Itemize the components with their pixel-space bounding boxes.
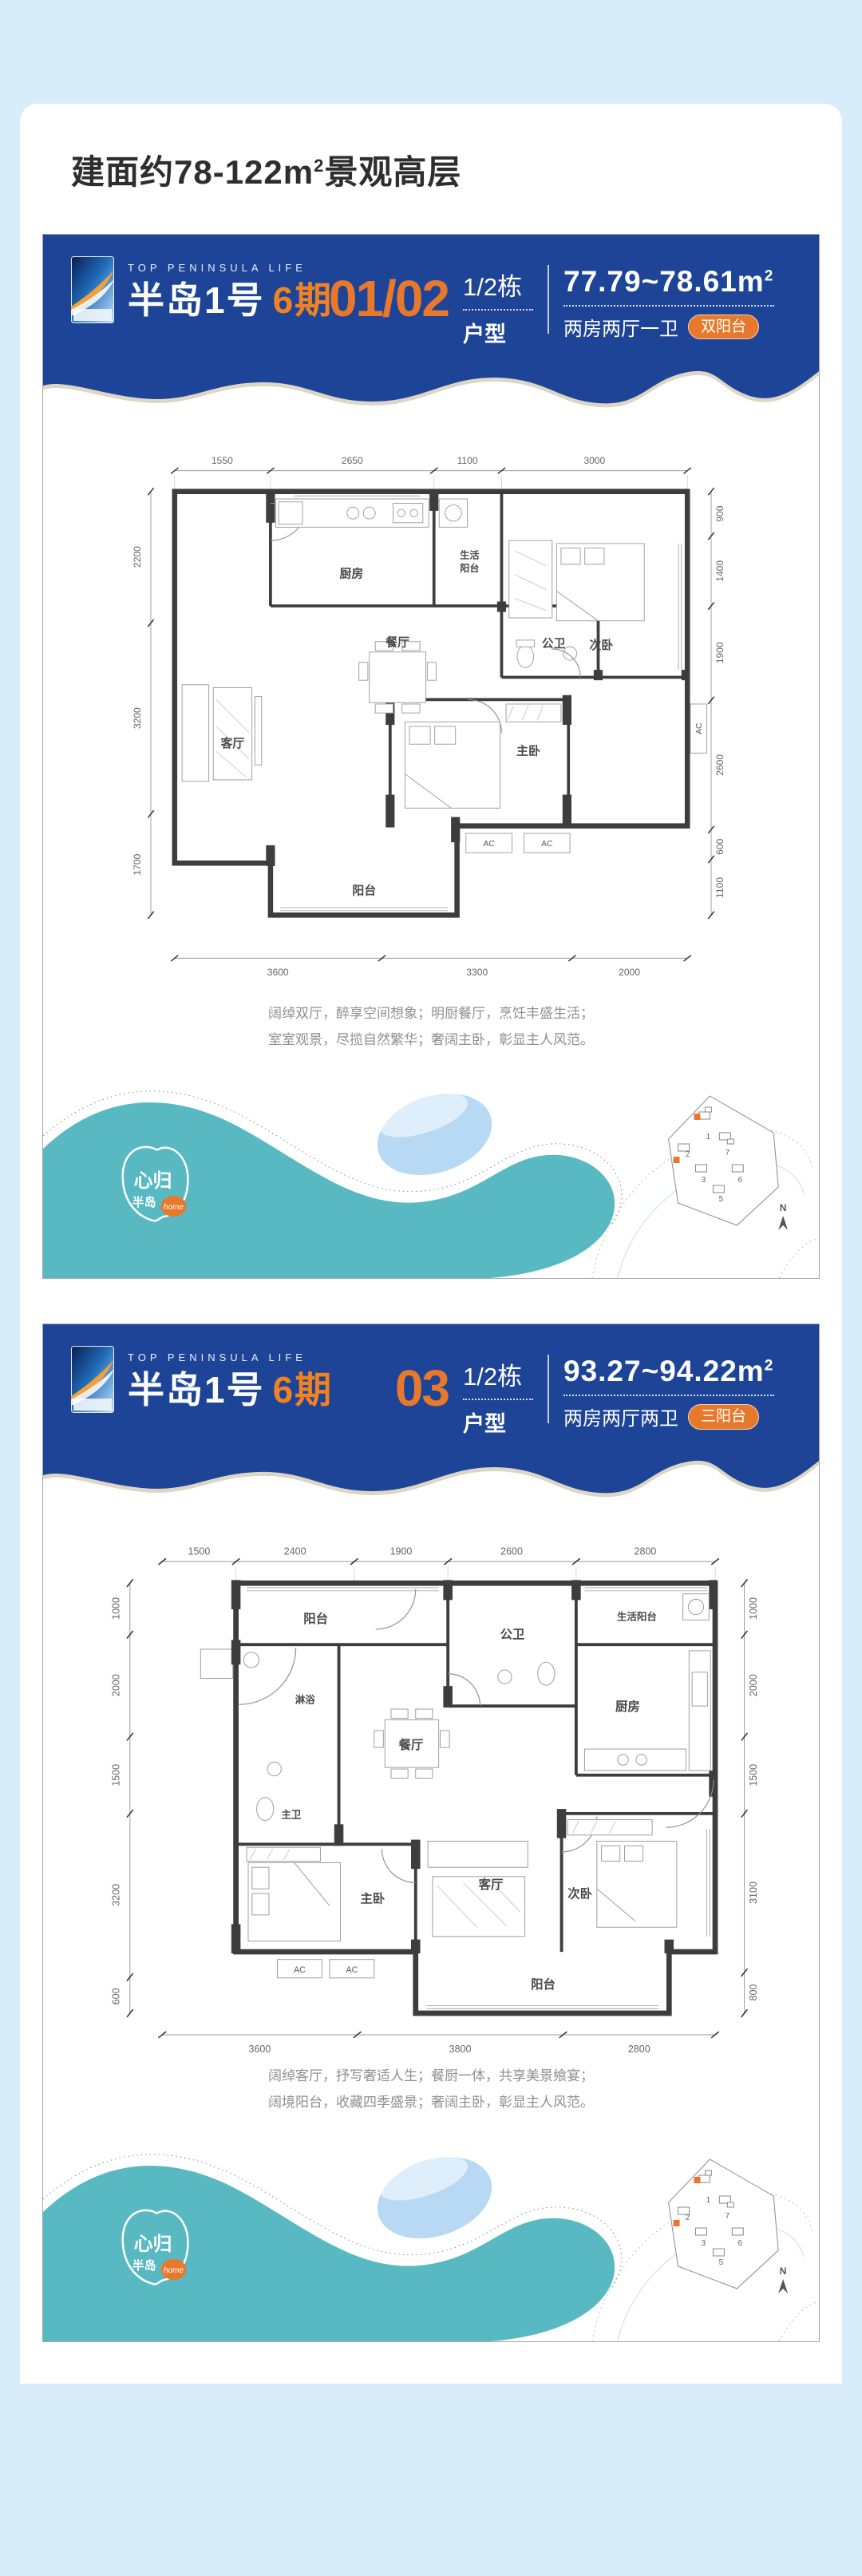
brand-name: 半岛1号6期 — [128, 1371, 333, 1408]
svg-text:2: 2 — [686, 1150, 690, 1159]
unit-card-03: TOP PENINSULA LIFE 半岛1号6期 03 1/2栋 户型 93.… — [42, 1324, 820, 2341]
brand-tagline: TOP PENINSULA LIFE — [128, 1351, 333, 1363]
footer-art: 心归 半岛 home 1 2 7 3 6 5 — [43, 2129, 819, 2341]
unit-building: 1/2栋 — [463, 1356, 533, 1392]
svg-text:阳台: 阳台 — [303, 1612, 328, 1627]
compass-icon: N — [778, 2265, 788, 2293]
svg-text:1100: 1100 — [457, 455, 478, 466]
brand-name-cn: 半岛1号 — [128, 1369, 265, 1411]
unit-layout: 两房两厅两卫 — [563, 1403, 678, 1430]
brand-block: TOP PENINSULA LIFE 半岛1号6期 — [70, 255, 333, 324]
svg-text:6: 6 — [738, 2239, 743, 2248]
svg-text:1000: 1000 — [748, 1597, 759, 1620]
svg-text:AC: AC — [695, 723, 704, 734]
svg-text:阳台: 阳台 — [460, 562, 479, 574]
svg-text:餐厅: 餐厅 — [399, 1737, 424, 1752]
dim-right: 900 1400 1900 2600 600 1100 — [708, 488, 726, 919]
dim-top: 1500 2400 1900 2600 2800 — [158, 1546, 718, 1582]
unit-area-block: 77.79~78.61m2 两房两厅一卫 双阳台 — [563, 257, 774, 341]
header-wave — [43, 1456, 819, 1507]
unit-area-value: 93.27~94.22m — [563, 1355, 765, 1387]
svg-text:1000: 1000 — [110, 1597, 121, 1620]
dim-left: 1000 2000 1500 3200 600 — [110, 1580, 132, 2017]
svg-text:心归: 心归 — [134, 2234, 172, 2255]
svg-text:主卧: 主卧 — [516, 743, 540, 758]
svg-text:生活阳台: 生活阳台 — [617, 1611, 657, 1623]
svg-text:3000: 3000 — [583, 455, 605, 466]
svg-text:home: home — [164, 1203, 184, 1212]
dim-bottom: 3600 3300 2000 — [171, 956, 691, 978]
unit-layout: 两房两厅一卫 — [563, 313, 678, 341]
dotted-divider — [463, 309, 533, 311]
svg-text:600: 600 — [714, 838, 726, 854]
svg-text:2400: 2400 — [284, 1546, 306, 1557]
unit-area: 93.27~94.22m2 — [563, 1355, 774, 1388]
unit-info: 03 1/2栋 户型 93.27~94.22m2 两房两厅两卫 三阳台 — [311, 1347, 774, 1438]
svg-text:1500: 1500 — [748, 1764, 759, 1787]
desc-line-2: 室室观景，尽揽自然繁华；奢阔主卧，彰显主人风范。 — [268, 1032, 594, 1047]
svg-text:5: 5 — [719, 2258, 724, 2267]
brand-name: 半岛1号6期 — [128, 282, 333, 319]
unit-area-sup: 2 — [765, 268, 774, 285]
teal-wave — [43, 2154, 622, 2341]
svg-text:N: N — [780, 1202, 787, 1213]
unit-area-block: 93.27~94.22m2 两房两厅两卫 三阳台 — [563, 1347, 774, 1430]
svg-text:客厅: 客厅 — [479, 1877, 504, 1892]
svg-text:AC: AC — [294, 1965, 306, 1975]
title-sup: 2 — [314, 156, 324, 176]
compass-icon: N — [778, 1202, 788, 1230]
brand-logo-icon — [70, 255, 115, 324]
svg-text:6: 6 — [738, 1176, 743, 1185]
svg-text:1500: 1500 — [110, 1764, 121, 1787]
unit-card-01-02: TOP PENINSULA LIFE 半岛1号6期 01/02 1/2栋 户型 … — [42, 234, 820, 1279]
unit-type-label: 户型 — [463, 317, 533, 348]
svg-text:1900: 1900 — [390, 1546, 413, 1557]
balcony-tag: 双阳台 — [688, 315, 759, 340]
svg-text:3200: 3200 — [110, 1884, 121, 1906]
svg-text:心归: 心归 — [134, 1170, 172, 1192]
title-prefix: 建面约78-122m — [71, 153, 314, 191]
svg-text:2650: 2650 — [342, 455, 363, 466]
brand-name-cn: 半岛1号 — [128, 279, 265, 321]
unit-area: 77.79~78.61m2 — [563, 265, 774, 299]
svg-text:800: 800 — [748, 1984, 759, 2001]
svg-text:3800: 3800 — [449, 2044, 472, 2055]
floorplan-2: 1500 2400 1900 2600 2800 1000 2000 1500 … — [85, 1521, 777, 2060]
brand-text: TOP PENINSULA LIFE 半岛1号6期 — [128, 1345, 333, 1408]
dim-top: 1550 2650 1100 3000 — [171, 455, 691, 490]
svg-text:2600: 2600 — [500, 1546, 523, 1557]
svg-text:淋浴: 淋浴 — [295, 1694, 316, 1706]
svg-text:生活: 生活 — [460, 548, 479, 560]
brand-text: TOP PENINSULA LIFE 半岛1号6期 — [128, 255, 333, 319]
svg-text:AC: AC — [484, 840, 495, 849]
windows — [247, 1588, 710, 2008]
site-map: 1 2 7 3 6 5 N — [669, 1096, 789, 1230]
svg-text:N: N — [780, 2265, 787, 2277]
balcony-tag: 三阳台 — [688, 1404, 759, 1430]
svg-text:2000: 2000 — [748, 1675, 759, 1697]
dotted-divider — [463, 1399, 533, 1400]
unit-building-block: 1/2栋 户型 — [463, 257, 533, 348]
title-suffix: 景观高层 — [324, 153, 461, 191]
unit-number: 03 — [311, 1347, 449, 1430]
unit-type-label: 户型 — [463, 1407, 533, 1438]
svg-text:1900: 1900 — [714, 642, 726, 663]
unit-info: 01/02 1/2栋 户型 77.79~78.61m2 两房两厅一卫 双阳台 — [311, 257, 774, 348]
water-blob — [367, 1080, 503, 1189]
svg-text:半岛: 半岛 — [132, 2258, 156, 2273]
svg-text:1550: 1550 — [212, 455, 233, 466]
dim-left: 2200 3200 1700 — [132, 488, 154, 919]
svg-text:900: 900 — [714, 505, 726, 521]
svg-text:客厅: 客厅 — [220, 736, 245, 750]
svg-text:3: 3 — [702, 2239, 706, 2248]
unit-building: 1/2栋 — [463, 267, 533, 303]
unit-building-block: 1/2栋 户型 — [463, 1347, 533, 1438]
svg-text:公卫: 公卫 — [542, 637, 566, 651]
walls — [200, 1581, 717, 2014]
svg-text:2000: 2000 — [619, 967, 640, 978]
unit-area-sup: 2 — [765, 1358, 774, 1375]
svg-text:2800: 2800 — [628, 2044, 650, 2055]
svg-text:AC: AC — [346, 1965, 358, 1975]
card-header: TOP PENINSULA LIFE 半岛1号6期 01/02 1/2栋 户型 … — [43, 235, 819, 367]
svg-text:1: 1 — [706, 2196, 711, 2205]
unit-area-value: 77.79~78.61m — [563, 265, 765, 298]
floorplan-1: 1550 2650 1100 3000 2200 3200 1700 900 1 — [108, 432, 754, 997]
svg-text:主卫: 主卫 — [281, 1809, 302, 1821]
brand-tagline: TOP PENINSULA LIFE — [128, 262, 333, 274]
content-container: 建面约78-122m2景观高层 TOP PENINSULA LIFE — [20, 104, 842, 2384]
vertical-divider — [548, 265, 549, 334]
dotted-divider — [563, 1395, 774, 1396]
svg-text:厨房: 厨房 — [615, 1699, 640, 1714]
svg-text:7: 7 — [726, 1149, 730, 1157]
svg-text:阳台: 阳台 — [531, 1977, 556, 1992]
svg-text:半岛: 半岛 — [132, 1195, 156, 1209]
brand-block: TOP PENINSULA LIFE 半岛1号6期 — [70, 1345, 333, 1414]
svg-text:3: 3 — [702, 1176, 706, 1185]
svg-text:次卧: 次卧 — [589, 638, 613, 652]
svg-text:7: 7 — [726, 2212, 730, 2221]
brand-logo-icon — [70, 1345, 115, 1414]
page-title: 建面约78-122m2景观高层 — [71, 145, 820, 194]
svg-text:1: 1 — [706, 1133, 711, 1142]
svg-text:3200: 3200 — [132, 707, 143, 729]
svg-text:1700: 1700 — [132, 853, 143, 875]
svg-text:厨房: 厨房 — [340, 567, 364, 581]
unit-description: 阔绰客厅，抒写奢适人生；餐厨一体，共享美景飨宴；阔境阳台，收藏四季盛景；奢阔主卧… — [43, 2063, 819, 2115]
svg-text:2000: 2000 — [110, 1675, 121, 1697]
svg-text:公卫: 公卫 — [500, 1628, 525, 1642]
unit-number: 01/02 — [311, 257, 449, 340]
dotted-divider — [563, 305, 774, 307]
svg-text:1400: 1400 — [714, 560, 726, 582]
svg-text:餐厅: 餐厅 — [386, 635, 409, 649]
dim-bottom: 3600 3800 2800 — [158, 2032, 718, 2055]
dim-right: 1000 2000 1500 3100 800 — [741, 1580, 759, 2017]
svg-text:3600: 3600 — [267, 967, 289, 978]
unit-description: 阔绰双厅，醉享空间想象；明厨餐厅，烹饪丰盛生活；室室观景，尽揽自然繁华；奢阔主卧… — [43, 1000, 819, 1053]
svg-text:3300: 3300 — [466, 967, 488, 978]
svg-text:5: 5 — [719, 1195, 724, 1204]
svg-text:阳台: 阳台 — [352, 883, 376, 897]
vertical-divider — [548, 1355, 549, 1423]
svg-text:home: home — [164, 2266, 184, 2275]
unit-layout-row: 两房两厅两卫 三阳台 — [563, 1403, 774, 1430]
svg-text:3100: 3100 — [748, 1882, 759, 1904]
svg-text:3600: 3600 — [249, 2044, 271, 2055]
teal-wave — [43, 1091, 622, 1278]
svg-text:主卧: 主卧 — [360, 1891, 385, 1906]
water-blob — [367, 2143, 503, 2252]
svg-text:2200: 2200 — [132, 546, 143, 568]
svg-text:2600: 2600 — [714, 754, 726, 776]
svg-text:次卧: 次卧 — [567, 1886, 592, 1901]
svg-text:1500: 1500 — [188, 1546, 211, 1557]
floorplan-1-wrap: 1550 2650 1100 3000 2200 3200 1700 900 1 — [43, 432, 819, 997]
header-wave — [43, 366, 819, 417]
card-header: TOP PENINSULA LIFE 半岛1号6期 03 1/2栋 户型 93.… — [43, 1324, 819, 1457]
svg-text:1100: 1100 — [714, 877, 726, 898]
desc-line-2: 阔境阳台，收藏四季盛景；奢阔主卧，彰显主人风范。 — [268, 2095, 594, 2110]
desc-line-1: 阔绰客厅，抒写奢适人生；餐厨一体，共享美景飨宴； — [268, 2068, 594, 2083]
svg-text:AC: AC — [541, 840, 552, 849]
desc-line-1: 阔绰双厅，醉享空间想象；明厨餐厅，烹饪丰盛生活； — [268, 1006, 594, 1021]
site-map: 1 2 7 3 6 5 N — [669, 2159, 789, 2293]
furniture — [182, 499, 706, 853]
svg-text:2: 2 — [686, 2214, 690, 2222]
footer-art: 心归 半岛 home 1 2 7 3 6 5 — [43, 1066, 819, 1278]
unit-layout-row: 两房两厅一卫 双阳台 — [563, 313, 774, 341]
svg-text:2800: 2800 — [635, 1546, 657, 1557]
furniture — [239, 1594, 710, 1978]
floorplan-2-wrap: 1500 2400 1900 2600 2800 1000 2000 1500 … — [43, 1521, 819, 2060]
svg-text:600: 600 — [110, 1988, 121, 2005]
